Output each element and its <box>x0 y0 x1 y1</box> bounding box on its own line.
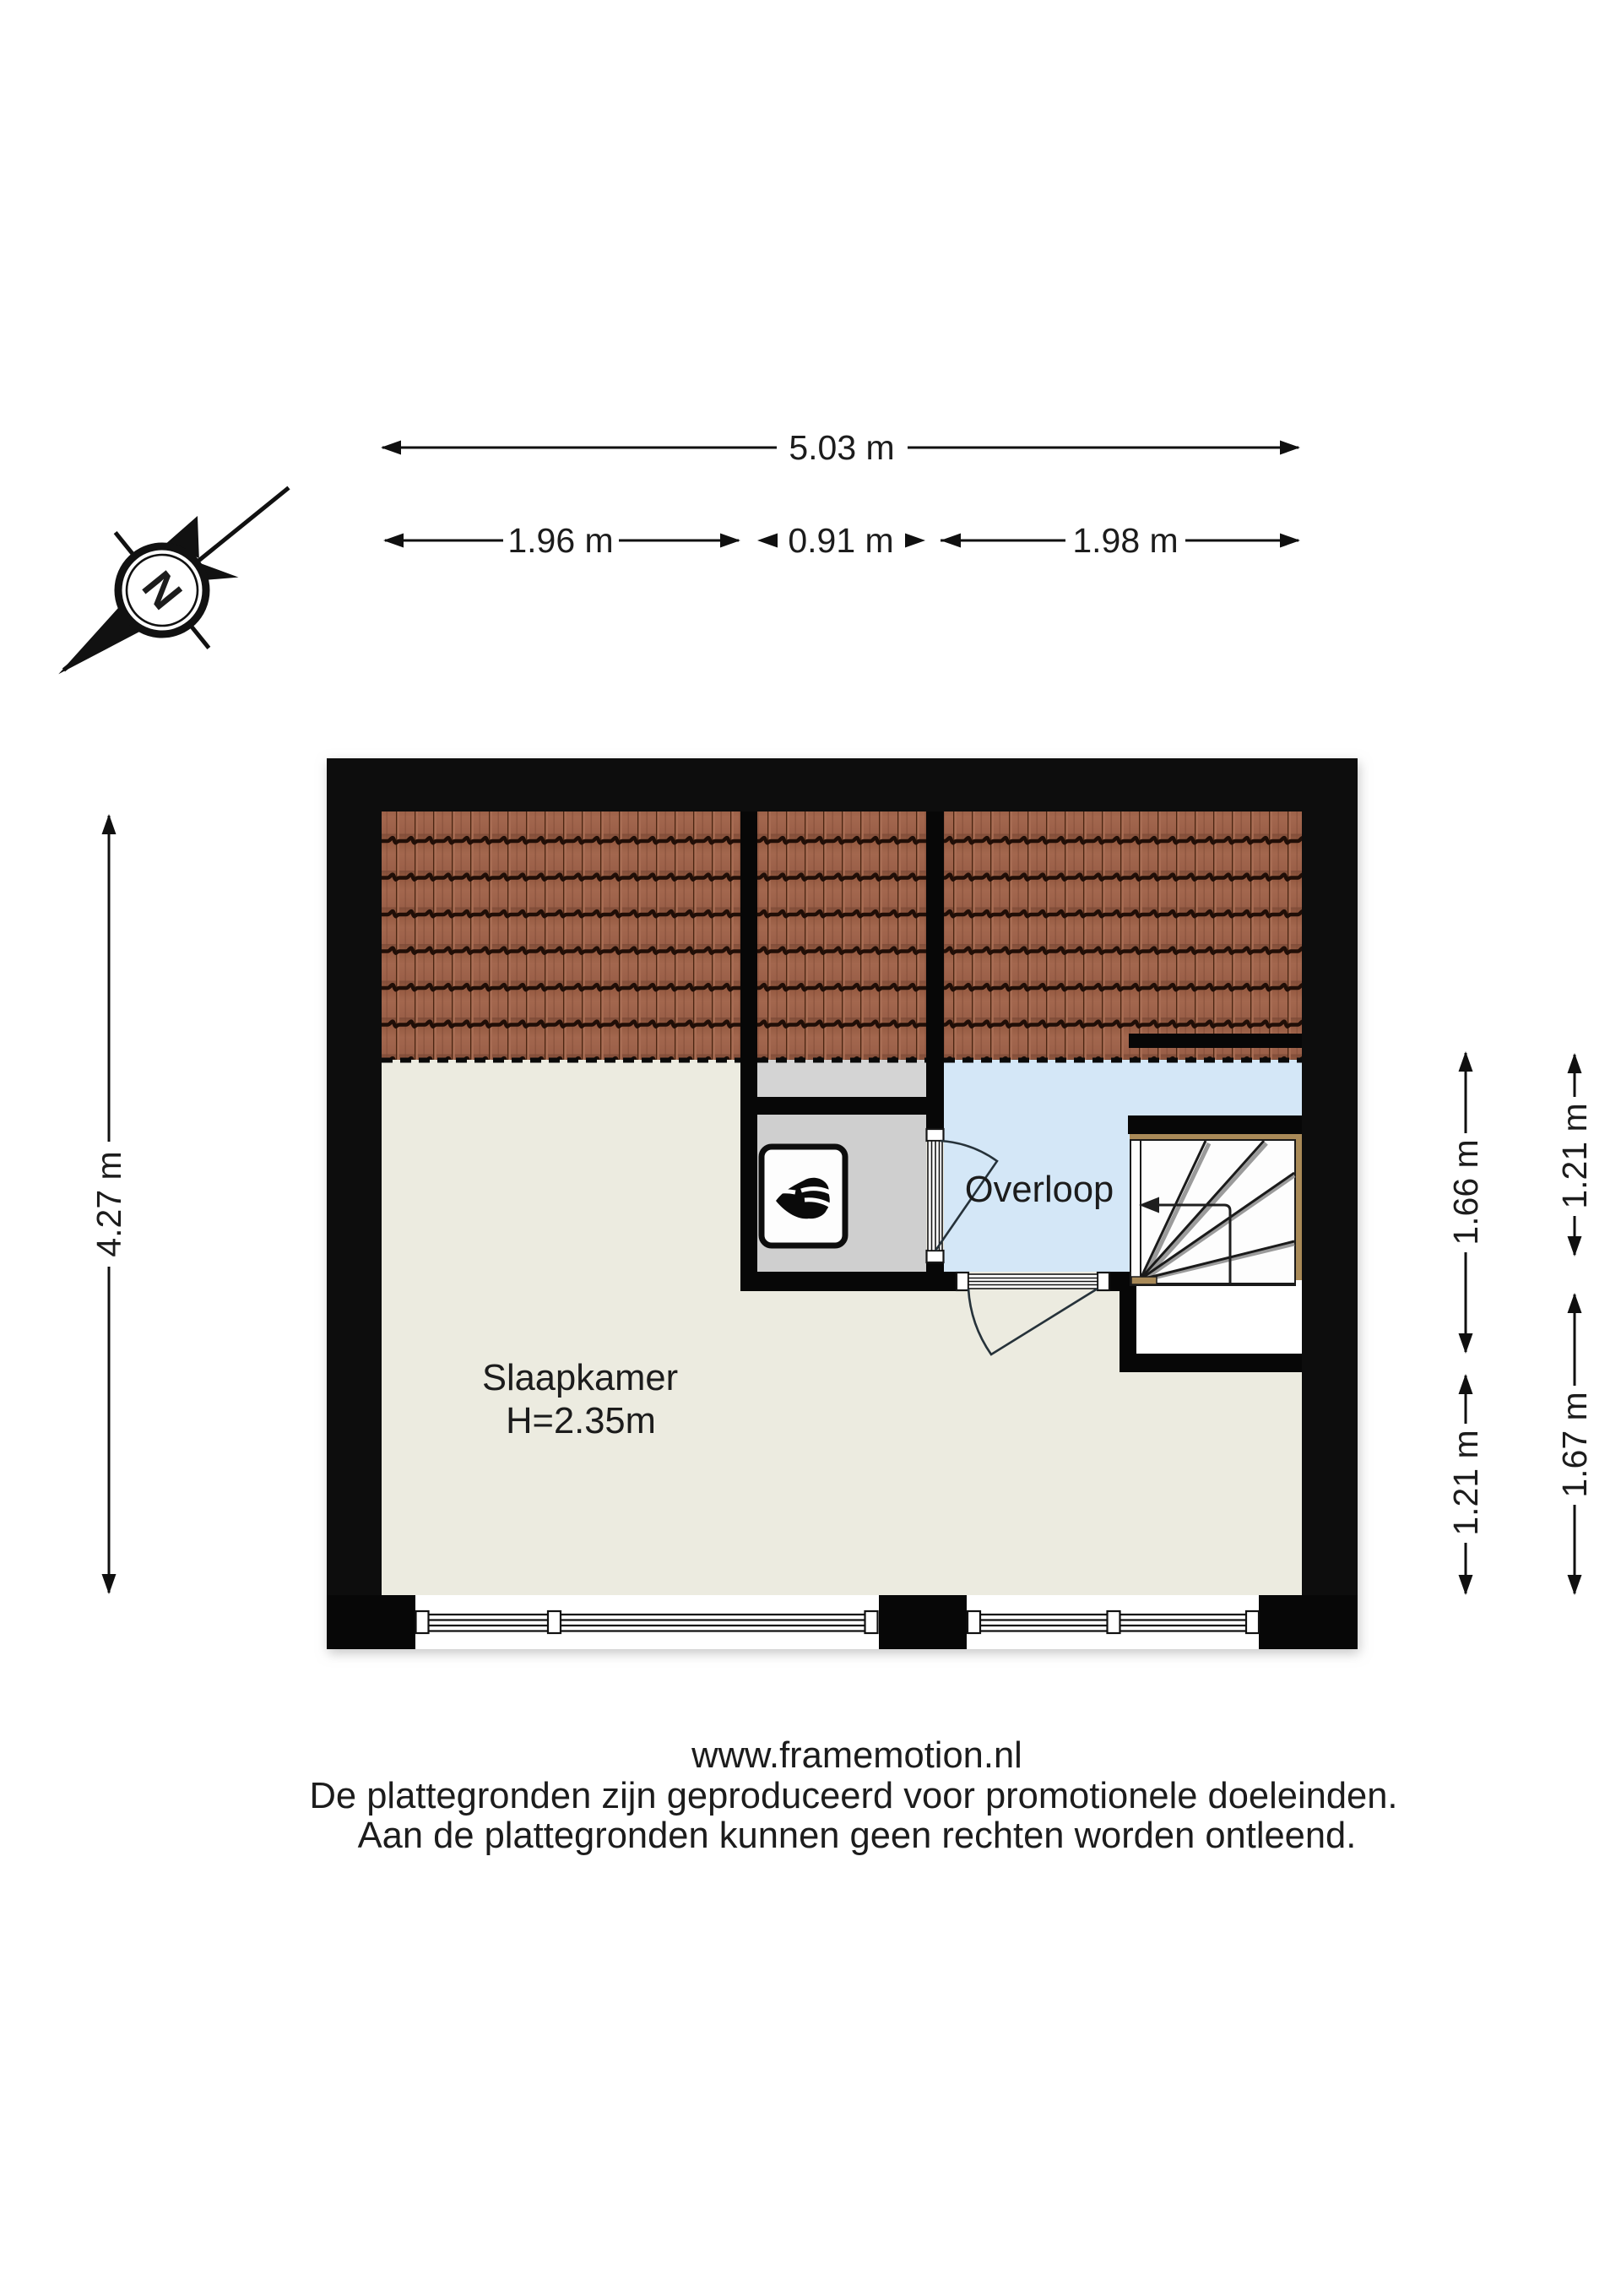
svg-text:www.framemotion.nl: www.framemotion.nl <box>691 1735 1022 1776</box>
svg-text:Overloop: Overloop <box>965 1170 1114 1210</box>
svg-text:H=2.35m: H=2.35m <box>506 1401 656 1441</box>
svg-text:Slaapkamer: Slaapkamer <box>482 1358 678 1398</box>
svg-text:Aan de plattegronden kunnen ge: Aan de plattegronden kunnen geen rechten… <box>358 1816 1357 1856</box>
svg-text:1.21 m: 1.21 m <box>1446 1430 1485 1535</box>
svg-text:De plattegronden zijn geproduc: De plattegronden zijn geproduceerd voor … <box>310 1776 1398 1816</box>
svg-text:1.66 m: 1.66 m <box>1446 1139 1485 1245</box>
svg-text:1.96 m: 1.96 m <box>507 521 613 560</box>
svg-text:0.91 m: 0.91 m <box>788 521 893 560</box>
svg-text:1.98 m: 1.98 m <box>1072 521 1178 560</box>
svg-text:5.03 m: 5.03 m <box>789 428 894 467</box>
svg-text:4.27 m: 4.27 m <box>89 1151 128 1257</box>
svg-text:1.21 m: 1.21 m <box>1555 1103 1594 1208</box>
svg-text:1.67 m: 1.67 m <box>1555 1392 1594 1497</box>
